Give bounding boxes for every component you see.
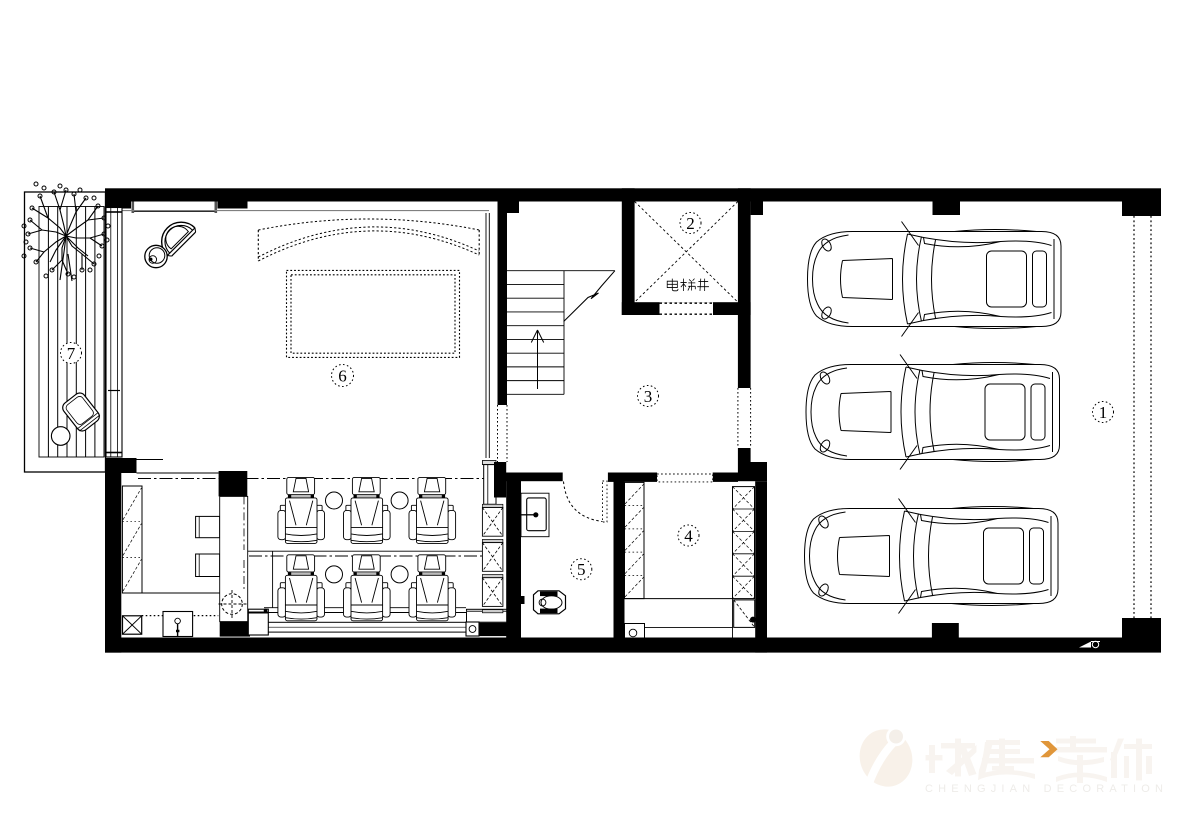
svg-text:2: 2 [686,214,695,233]
svg-text:7: 7 [67,344,76,363]
svg-text:5: 5 [577,560,586,579]
svg-text:4: 4 [684,527,693,546]
svg-text:CHENGJIAN DECORATION: CHENGJIAN DECORATION [925,783,1168,795]
svg-text:1: 1 [1099,403,1108,422]
svg-text:6: 6 [338,367,347,386]
svg-text:3: 3 [644,387,653,406]
